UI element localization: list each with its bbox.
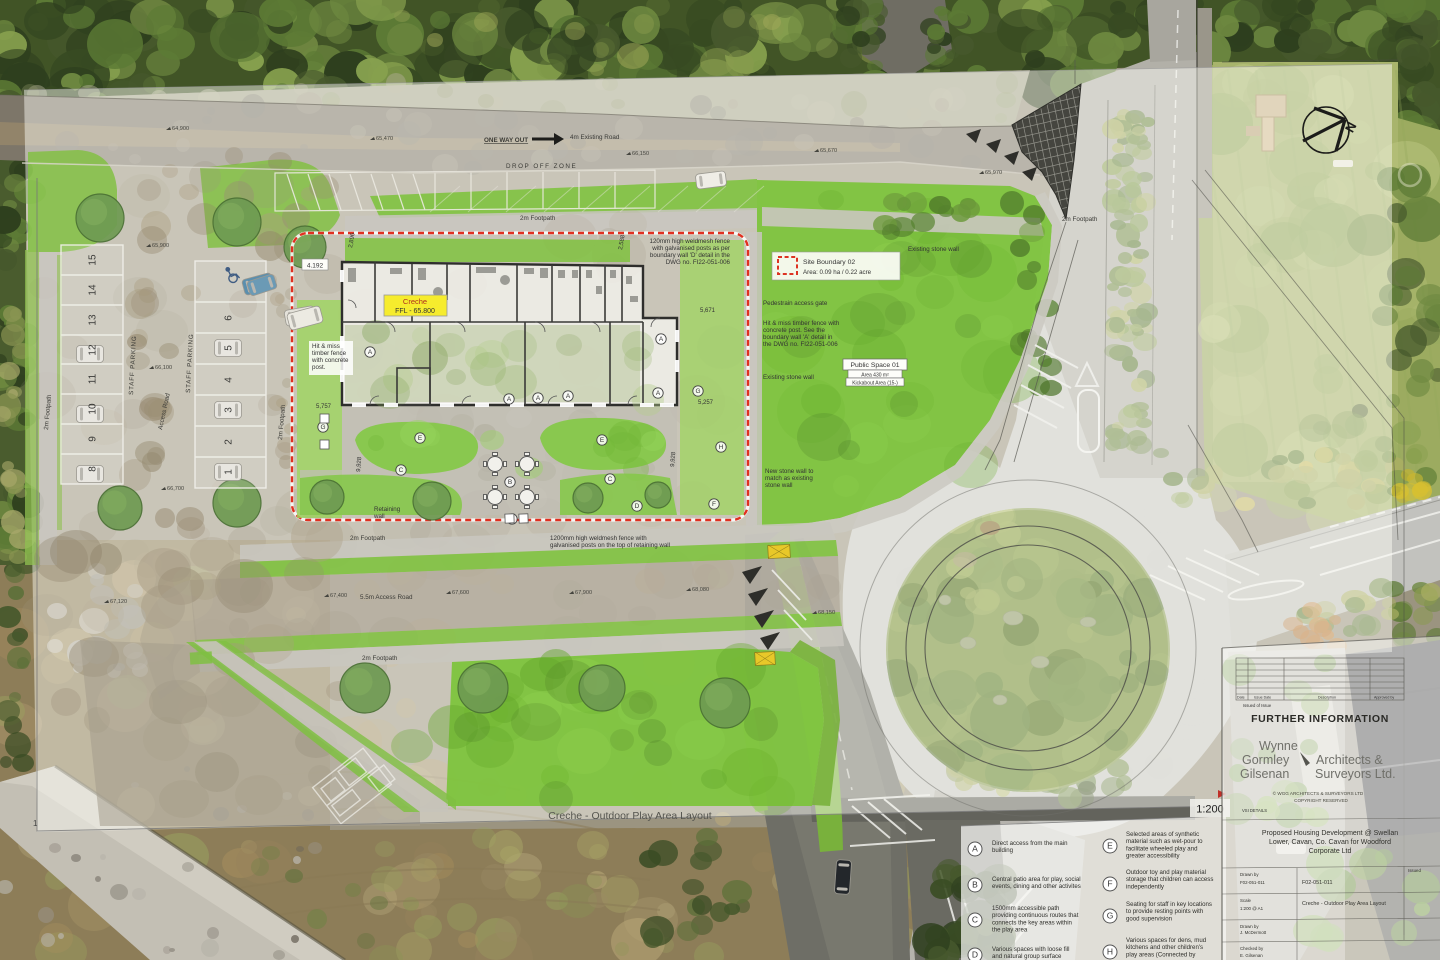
svg-text:Site Boundary 02: Site Boundary 02 <box>803 259 855 266</box>
svg-text:1: 1 <box>224 469 235 475</box>
svg-text:66,700: 66,700 <box>167 486 184 492</box>
svg-text:2: 2 <box>224 439 235 445</box>
svg-text:Kickabout Area (15-): Kickabout Area (15-) <box>852 381 898 387</box>
svg-text:Area 430 m²: Area 430 m² <box>861 373 889 379</box>
svg-text:65,900: 65,900 <box>152 243 169 249</box>
svg-text:G: G <box>320 424 325 431</box>
svg-text:Gormley: Gormley <box>1242 753 1290 767</box>
svg-text:Retaining: Retaining <box>374 506 401 513</box>
svg-text:Creche - Outdoor Play Area Lay: Creche - Outdoor Play Area Layout <box>548 810 712 822</box>
svg-text:H: H <box>1107 947 1113 957</box>
svg-text:10: 10 <box>88 403 99 415</box>
svg-text:Existing stone wall: Existing stone wall <box>763 374 814 381</box>
svg-text:4.192: 4.192 <box>307 263 324 270</box>
svg-text:independently: independently <box>1126 883 1165 890</box>
svg-text:building: building <box>992 847 1013 854</box>
svg-text:Gilsenan: Gilsenan <box>1240 767 1289 781</box>
svg-text:C: C <box>399 467 404 474</box>
svg-text:Wynne: Wynne <box>1259 739 1298 753</box>
svg-text:concrete post. See the: concrete post. See the <box>763 327 825 334</box>
svg-text:66,150: 66,150 <box>632 151 649 157</box>
svg-text:Description: Description <box>1318 696 1336 700</box>
svg-text:New stone wall to: New stone wall to <box>765 468 814 475</box>
svg-text:Various spaces with loose fill: Various spaces with loose fill <box>992 946 1069 953</box>
svg-text:storage that children can acce: storage that children can access <box>1126 876 1213 883</box>
svg-text:Drawn by: Drawn by <box>1240 872 1259 877</box>
svg-text:galvanised posts on the top of: galvanised posts on the top of retaining… <box>550 542 670 549</box>
svg-text:6: 6 <box>224 315 235 321</box>
svg-text:G: G <box>695 388 700 395</box>
svg-text:2m Footpath: 2m Footpath <box>350 535 386 542</box>
svg-text:Issued: Issued <box>1408 868 1421 873</box>
svg-text:11: 11 <box>88 373 99 384</box>
svg-text:Lower, Cavan, Co. Cavan for Wo: Lower, Cavan, Co. Cavan for Woodford <box>1269 839 1391 846</box>
svg-text:Creche - Outdoor Play Area Lay: Creche - Outdoor Play Area Layout <box>1302 901 1386 907</box>
svg-text:G: G <box>1107 911 1114 921</box>
svg-text:Proposed Housing Development @: Proposed Housing Development @ Swellan <box>1262 830 1398 837</box>
svg-text:Corporate Ltd: Corporate Ltd <box>1309 848 1352 855</box>
svg-text:play areas (Connected by: play areas (Connected by <box>1126 951 1196 958</box>
svg-text:5: 5 <box>224 345 235 351</box>
svg-text:1: 1 <box>33 819 38 828</box>
svg-text:kitchens and other children's: kitchens and other children's <box>1126 944 1203 951</box>
svg-text:FURTHER INFORMATION: FURTHER INFORMATION <box>1251 713 1389 725</box>
svg-text:Direct access from the main: Direct access from the main <box>992 840 1068 847</box>
svg-text:match as existing: match as existing <box>765 475 813 482</box>
svg-text:F02-051-011: F02-051-011 <box>1240 880 1265 885</box>
svg-text:and natural group surface: and natural group surface <box>992 953 1062 960</box>
svg-text:65,970: 65,970 <box>985 170 1002 176</box>
svg-text:boundary wall 'D' detail in th: boundary wall 'D' detail in the <box>650 252 731 259</box>
svg-text:67,600: 67,600 <box>452 590 469 596</box>
svg-text:65,670: 65,670 <box>820 148 837 154</box>
svg-text:A: A <box>659 336 664 343</box>
svg-text:Seating for staff in key locat: Seating for staff in key locations <box>1126 901 1212 908</box>
svg-text:15: 15 <box>88 254 99 266</box>
svg-text:A: A <box>972 844 978 854</box>
svg-text:66,100: 66,100 <box>155 365 172 371</box>
svg-text:8: 8 <box>88 466 99 472</box>
svg-text:VSI DETAILS: VSI DETAILS <box>1242 808 1267 813</box>
svg-text:Selected areas of synthetic: Selected areas of synthetic <box>1126 831 1199 838</box>
svg-text:9: 9 <box>88 436 99 442</box>
svg-text:stone wall: stone wall <box>765 482 793 489</box>
svg-text:good supervision: good supervision <box>1126 915 1172 922</box>
svg-text:1500mm accessible path: 1500mm accessible path <box>992 905 1059 912</box>
svg-text:Existing stone wall: Existing stone wall <box>908 246 959 253</box>
svg-text:Outdoor toy and play material: Outdoor toy and play material <box>1126 869 1206 876</box>
svg-text:E: E <box>418 435 423 442</box>
svg-text:material such as wet-pour to: material such as wet-pour to <box>1126 838 1203 845</box>
svg-text:1:200 @ A1: 1:200 @ A1 <box>1240 906 1264 911</box>
svg-text:the play area: the play area <box>992 927 1028 934</box>
svg-text:DWG no. FI22-051-006: DWG no. FI22-051-006 <box>666 259 731 266</box>
svg-text:timber fence: timber fence <box>312 350 347 357</box>
svg-text:greater accessibility: greater accessibility <box>1126 853 1180 860</box>
svg-text:connects the key areas within: connects the key areas within <box>992 919 1072 926</box>
svg-text:4m Existing Road: 4m Existing Road <box>570 134 620 141</box>
svg-text:C: C <box>608 476 613 483</box>
svg-text:5,671: 5,671 <box>700 308 716 314</box>
svg-text:2m Footpath: 2m Footpath <box>362 655 398 662</box>
svg-text:to provide resting points with: to provide resting points with <box>1126 908 1203 915</box>
svg-text:Approved by: Approved by <box>1374 696 1394 700</box>
svg-text:E: E <box>1107 841 1113 851</box>
svg-text:C: C <box>972 915 978 925</box>
svg-text:B: B <box>972 880 978 890</box>
svg-text:boundary wall 'A' detail in: boundary wall 'A' detail in <box>763 334 833 341</box>
svg-text:68,080: 68,080 <box>692 587 709 593</box>
svg-text:post.: post. <box>312 364 326 371</box>
svg-text:5,257: 5,257 <box>698 400 714 406</box>
svg-text:F: F <box>712 501 716 508</box>
svg-text:A: A <box>536 395 541 402</box>
svg-text:J. McDermott: J. McDermott <box>1240 930 1267 935</box>
svg-text:Issue Date: Issue Date <box>1254 696 1271 700</box>
svg-text:Checked by: Checked by <box>1240 946 1264 951</box>
svg-text:64,900: 64,900 <box>172 126 189 132</box>
svg-text:Area: 0.09 ha / 0.22 acre: Area: 0.09 ha / 0.22 acre <box>803 269 872 276</box>
svg-text:12: 12 <box>88 344 99 356</box>
svg-text:Pedestrain access gate: Pedestrain access gate <box>763 300 828 307</box>
svg-text:with galvanised posts as per: with galvanised posts as per <box>651 245 730 252</box>
svg-text:the DWG no. FI22-051-006: the DWG no. FI22-051-006 <box>763 341 838 348</box>
svg-text:with concrete: with concrete <box>311 357 349 364</box>
svg-text:events, dining and other activ: events, dining and other activites <box>992 883 1081 890</box>
svg-text:Creche: Creche <box>403 297 427 306</box>
svg-text:providing continuous routes th: providing continuous routes that <box>992 912 1079 919</box>
svg-text:H: H <box>719 444 724 451</box>
svg-text:Architects &: Architects & <box>1316 753 1383 767</box>
svg-text:Surveyors Ltd.: Surveyors Ltd. <box>1315 767 1396 781</box>
svg-text:Drawn by: Drawn by <box>1240 924 1259 929</box>
svg-text:4: 4 <box>224 377 235 383</box>
svg-text:Scale: Scale <box>1240 898 1252 903</box>
svg-text:14: 14 <box>88 284 99 296</box>
svg-text:Various spaces for dens, mud: Various spaces for dens, mud <box>1126 937 1206 944</box>
svg-text:A: A <box>368 349 373 356</box>
svg-text:2m Footpath: 2m Footpath <box>520 215 556 222</box>
svg-text:1200mm high weldmesh fence wit: 1200mm high weldmesh fence with <box>550 535 647 542</box>
svg-text:D: D <box>972 950 978 960</box>
svg-text:E. Gilsenan: E. Gilsenan <box>1240 953 1263 958</box>
svg-text:E: E <box>600 437 605 444</box>
svg-text:A: A <box>566 393 571 400</box>
svg-text:Hit & miss: Hit & miss <box>312 343 340 350</box>
svg-text:Public Space 01: Public Space 01 <box>850 362 899 369</box>
svg-text:5.5m Access Road: 5.5m Access Road <box>360 594 413 601</box>
svg-text:wall: wall <box>373 513 385 520</box>
svg-text:2m Footpath: 2m Footpath <box>1062 216 1098 223</box>
svg-text:67,400: 67,400 <box>330 593 347 599</box>
svg-text:67,120: 67,120 <box>110 599 127 605</box>
svg-text:Date: Date <box>1237 696 1245 700</box>
svg-text:1:200: 1:200 <box>1196 804 1224 816</box>
svg-text:COPYRIGHT RESERVED: COPYRIGHT RESERVED <box>1294 798 1348 803</box>
svg-text:5,757: 5,757 <box>316 404 332 410</box>
svg-text:Hit & miss timber fence with: Hit & miss timber fence with <box>763 320 840 327</box>
svg-text:3: 3 <box>224 407 235 413</box>
svg-text:F: F <box>1107 879 1112 889</box>
svg-text:F02-051-011: F02-051-011 <box>1302 880 1332 886</box>
svg-text:120mm high weldmesh fence: 120mm high weldmesh fence <box>650 238 731 245</box>
svg-text:68,150: 68,150 <box>818 610 835 616</box>
svg-text:13: 13 <box>88 314 99 326</box>
svg-text:© WGG ARCHITECTS & SURVEYORS L: © WGG ARCHITECTS & SURVEYORS LTD <box>1273 790 1364 796</box>
svg-text:Issued of Issue: Issued of Issue <box>1243 703 1272 708</box>
svg-text:FFL - 65.800: FFL - 65.800 <box>395 308 435 315</box>
svg-text:65,470: 65,470 <box>376 136 393 142</box>
svg-text:A: A <box>656 390 661 397</box>
svg-text:facilitate wheeled play and: facilitate wheeled play and <box>1126 845 1197 852</box>
svg-text:A: A <box>507 396 512 403</box>
svg-text:B: B <box>508 479 512 486</box>
svg-text:Central patio area for play, s: Central patio area for play, social <box>992 876 1081 883</box>
svg-text:DROP OFF ZONE: DROP OFF ZONE <box>506 163 577 170</box>
svg-text:ONE WAY OUT: ONE WAY OUT <box>484 137 528 144</box>
svg-text:D: D <box>635 503 640 510</box>
svg-text:67,900: 67,900 <box>575 590 592 596</box>
